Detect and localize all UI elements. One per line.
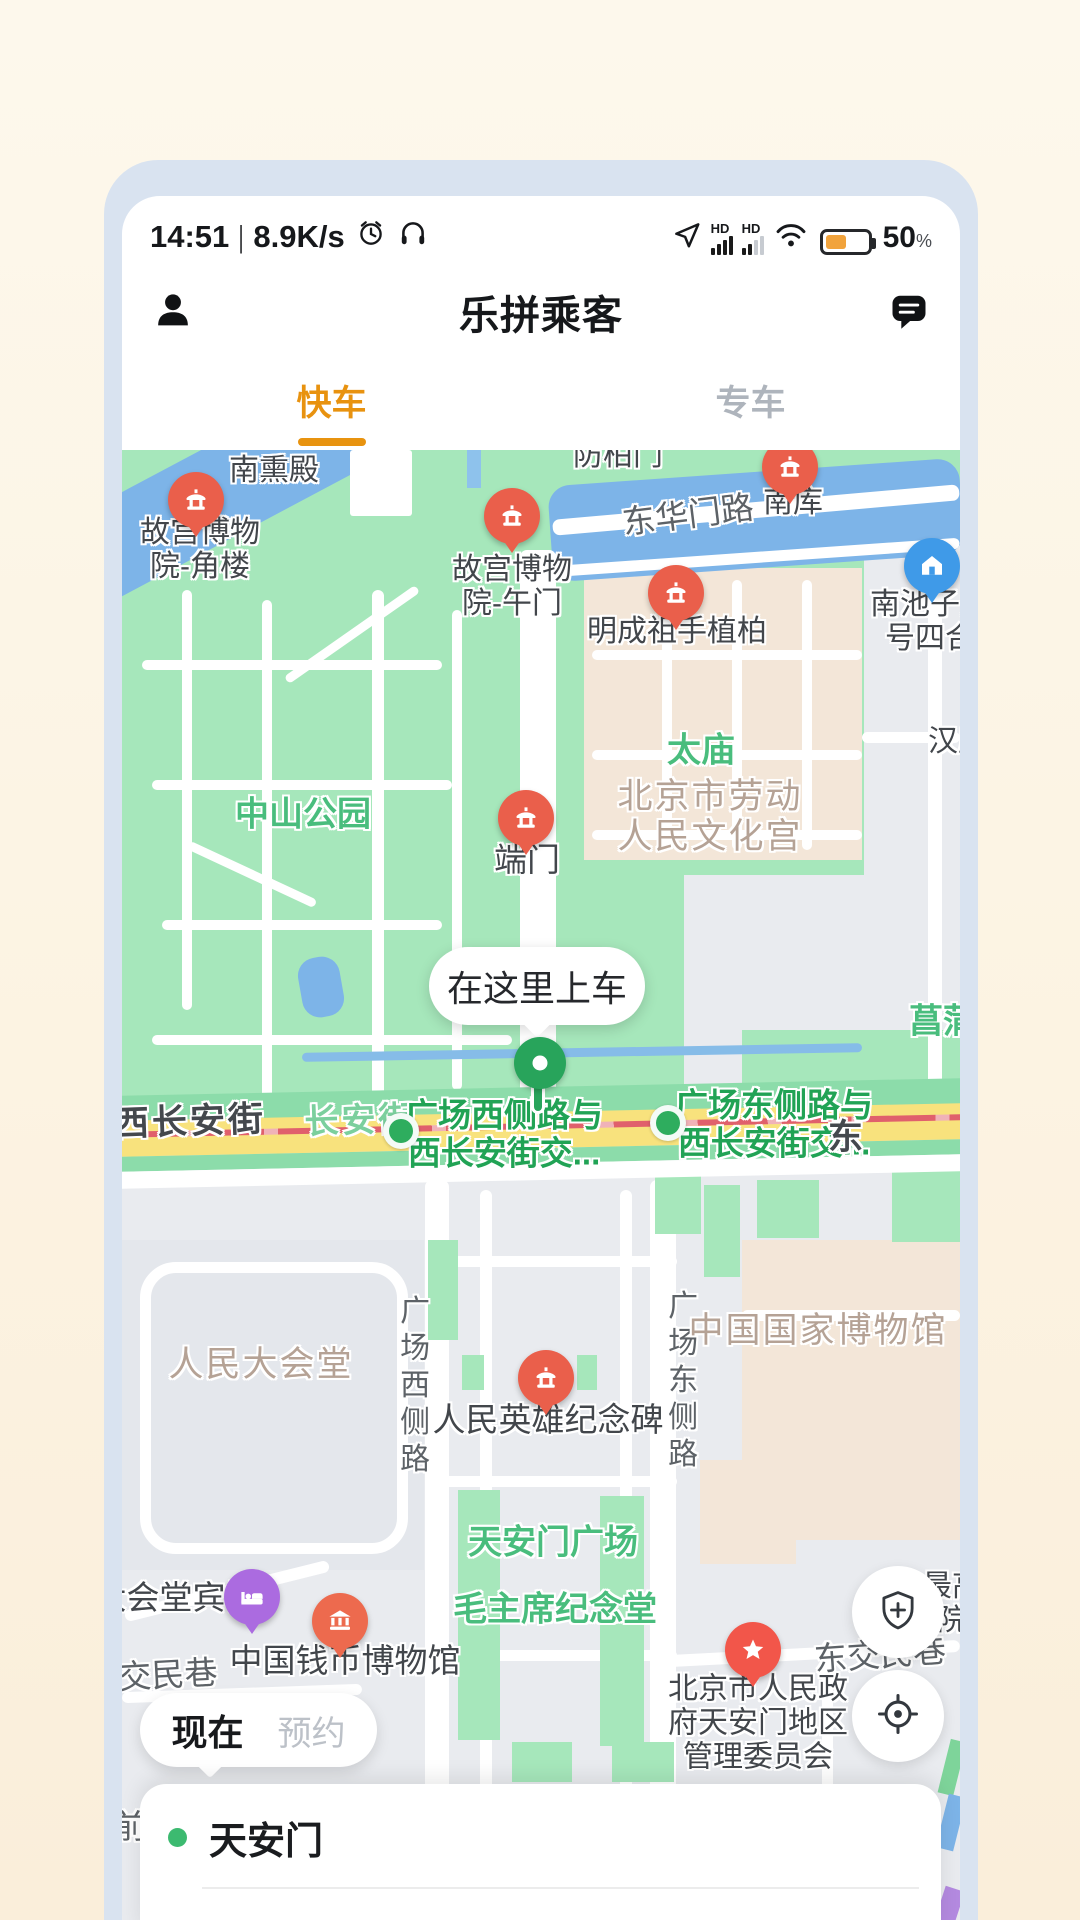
map-label-renmindahuitang: 人民大会堂 bbox=[168, 1345, 353, 1385]
map-pin-jiaolou bbox=[168, 472, 224, 528]
map-road bbox=[162, 920, 442, 930]
map-road bbox=[802, 580, 812, 850]
map-pin-guanweihui bbox=[725, 1622, 781, 1678]
pickup-pin[interactable] bbox=[514, 1037, 566, 1089]
messages-button[interactable] bbox=[886, 289, 932, 335]
headphones-icon bbox=[397, 217, 429, 257]
locate-button[interactable] bbox=[852, 1670, 944, 1762]
map-road bbox=[425, 1476, 677, 1487]
separator: | bbox=[239, 219, 244, 255]
map-road bbox=[592, 650, 862, 660]
shield-icon bbox=[873, 1585, 923, 1640]
map-road bbox=[425, 1256, 677, 1267]
map-pin-binguan bbox=[224, 1569, 280, 1625]
destination-text: 天安门 bbox=[209, 1810, 323, 1865]
map-label-dong: 东 bbox=[828, 1118, 866, 1158]
map-water bbox=[467, 450, 481, 488]
map-building bbox=[700, 1460, 796, 1564]
screen: 14:51|8.9K/s bbox=[0, 0, 1080, 1920]
map-label-xichanganjie: 西长安街 bbox=[122, 1099, 267, 1144]
map-pin-mingchengzu bbox=[648, 565, 704, 621]
map-label-nanxundian: 南熏殿 bbox=[229, 454, 319, 488]
map-label-taimiao: 太庙 bbox=[667, 732, 735, 771]
junction-dot-west bbox=[383, 1113, 419, 1149]
status-left: 14:51|8.9K/s bbox=[150, 217, 429, 257]
map-loop-road bbox=[140, 1262, 408, 1554]
map-label-baimen: 防柏门 bbox=[573, 450, 663, 473]
map-green bbox=[612, 1742, 674, 1782]
wifi-icon bbox=[773, 220, 809, 255]
battery-percent: 50% bbox=[883, 221, 932, 255]
divider bbox=[202, 1887, 919, 1889]
crosshair-icon bbox=[873, 1689, 923, 1744]
map-road bbox=[262, 600, 272, 1100]
map-pin-wumen bbox=[484, 488, 540, 544]
alarm-clock-icon bbox=[355, 217, 387, 257]
map-label-gugong-wumen: 故宫博物院-午门 bbox=[452, 553, 572, 621]
signal-hd-icon-1: HD bbox=[711, 222, 733, 255]
map-pin-qianbi bbox=[312, 1593, 368, 1649]
battery-icon bbox=[820, 229, 872, 255]
ride-type-tabs: 快车 专车 bbox=[122, 350, 960, 450]
map-pin-yingxiongbei bbox=[518, 1350, 574, 1406]
gps-arrow-icon bbox=[672, 220, 702, 255]
map-label-gcxi-road: 广场西侧路 bbox=[394, 1295, 428, 1480]
net-speed-text: 8.9K/s bbox=[253, 219, 344, 255]
reserve-button[interactable]: 预约 bbox=[278, 1706, 346, 1755]
pickup-bubble[interactable]: 在这里上车 bbox=[429, 947, 645, 1025]
map-label-guobo: 中国国家博物馆 bbox=[688, 1311, 947, 1351]
tab-premium[interactable]: 专车 bbox=[541, 350, 960, 450]
page-title: 乐拼乘客 bbox=[122, 283, 960, 341]
map-green bbox=[757, 1180, 819, 1238]
map-green bbox=[704, 1185, 740, 1277]
signal-hd-icon-2: HD bbox=[742, 222, 764, 255]
map-label-junction-west: 广场西侧路与西长安街交... bbox=[405, 1096, 603, 1171]
map-label-changpu: 菖蒲河 bbox=[909, 1003, 960, 1042]
map-road bbox=[142, 660, 442, 670]
clock-text: 14:51 bbox=[150, 219, 229, 255]
map-green bbox=[512, 1742, 572, 1782]
bottom-sheet: 天安门 bbox=[140, 1784, 941, 1920]
app-bar: 乐拼乘客 bbox=[122, 274, 960, 350]
map-green bbox=[577, 1355, 597, 1390]
map-green bbox=[938, 1739, 960, 1796]
map-building bbox=[903, 1480, 960, 1540]
map-green bbox=[428, 1240, 458, 1340]
destination-row[interactable]: 天安门 bbox=[140, 1808, 941, 1866]
tab-express[interactable]: 快车 bbox=[122, 350, 541, 450]
map-pin-nanchizi bbox=[904, 538, 960, 594]
map-label-wenhuagong: 北京市劳动人民文化宫 bbox=[617, 777, 802, 857]
status-bar: 14:51|8.9K/s bbox=[122, 206, 960, 268]
map-green bbox=[462, 1355, 484, 1390]
map-building bbox=[350, 450, 412, 516]
status-right: HD HD 50% bbox=[672, 220, 932, 255]
junction-dot-east bbox=[650, 1105, 686, 1141]
pickup-dot-icon bbox=[168, 1828, 187, 1847]
map-label-zhongshan-park: 中山公园 bbox=[235, 796, 371, 835]
map-label-han: 汉庭 bbox=[928, 725, 960, 759]
map-pin-duanmen bbox=[498, 790, 554, 846]
safety-button[interactable] bbox=[852, 1566, 944, 1658]
map-road bbox=[182, 590, 192, 1010]
map-label-maozhuxi: 毛主席纪念堂 bbox=[453, 1591, 657, 1630]
phone-screen: 14:51|8.9K/s bbox=[122, 196, 960, 1920]
map-label-tiananmen-square: 天安门广场 bbox=[468, 1524, 638, 1563]
now-button[interactable]: 现在 bbox=[171, 1704, 243, 1756]
map-label-nanchizi: 南池子大街号四合院 bbox=[870, 588, 960, 656]
map-road bbox=[152, 1035, 512, 1045]
map-road bbox=[152, 780, 452, 790]
time-mode-pill: 现在 预约 bbox=[140, 1693, 377, 1767]
chat-icon bbox=[887, 288, 931, 337]
map-label-jiaominxiang: 交民巷 bbox=[122, 1654, 218, 1697]
